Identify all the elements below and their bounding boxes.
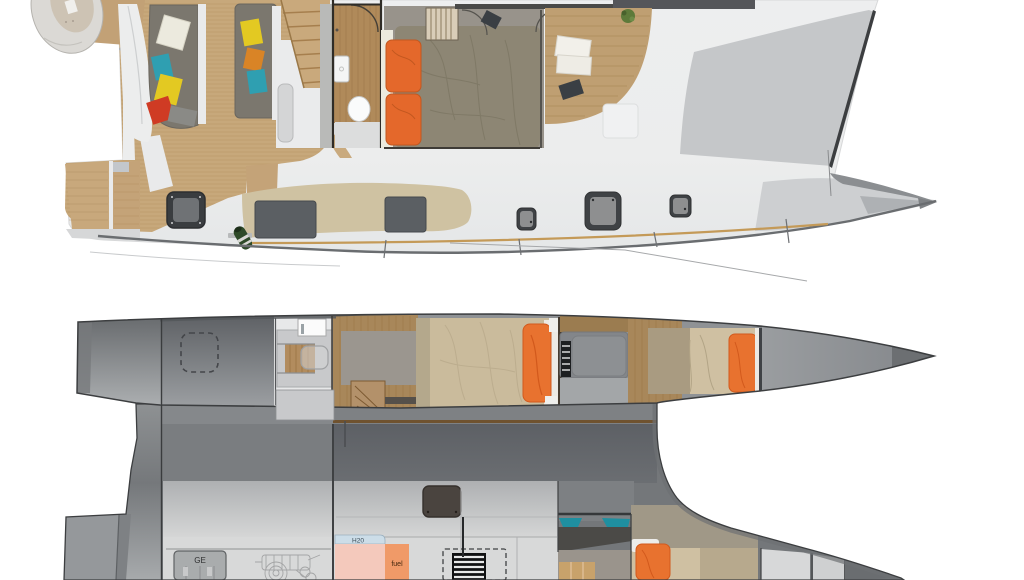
svg-text:H20: H20 (352, 538, 364, 545)
svg-text:GE: GE (194, 556, 206, 565)
svg-text:fuel: fuel (391, 561, 403, 568)
